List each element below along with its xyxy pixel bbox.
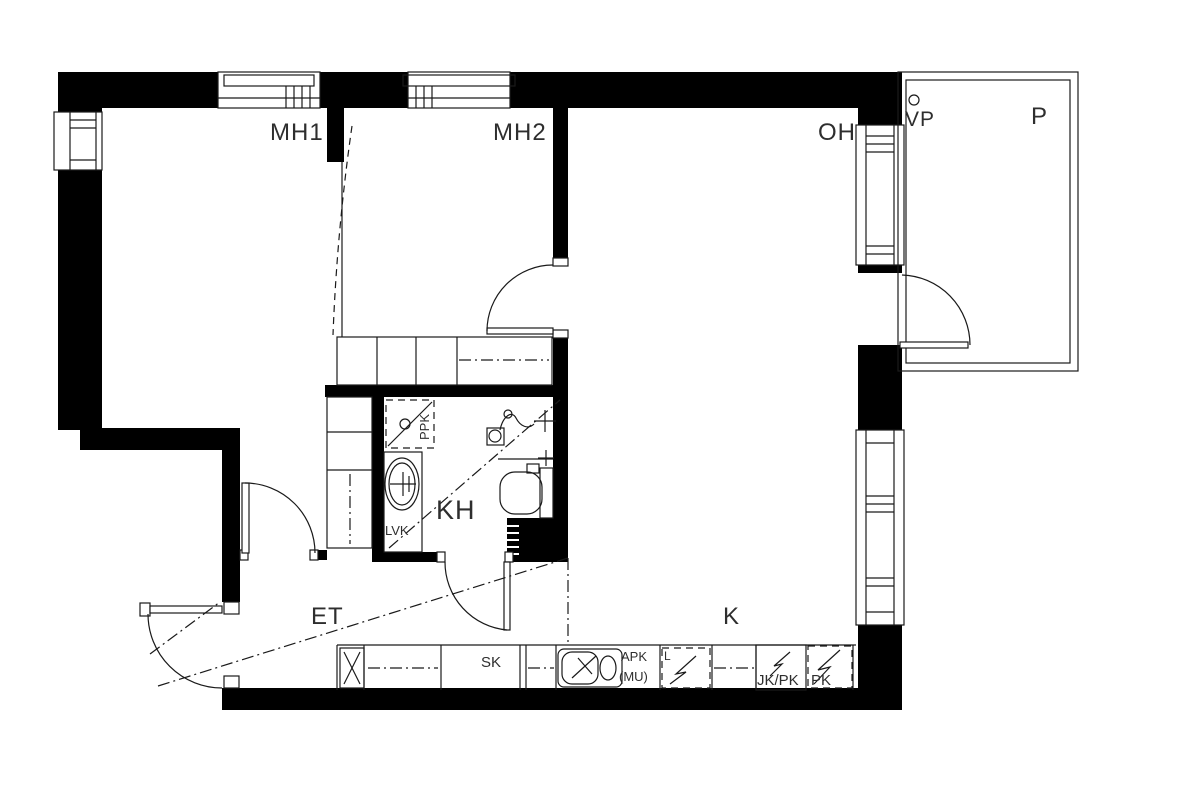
window-mh2 (403, 72, 515, 108)
label-sk: SK (481, 654, 501, 671)
room-label-et: ET (311, 603, 344, 630)
room-labels: MH1 MH2 OH VP P KH ET K (270, 103, 1048, 630)
label-vp: VP (905, 108, 935, 131)
floor-plan-drawing: MH1 MH2 OH VP P KH ET K LVK PPK SK APK (… (0, 0, 1200, 785)
floor-plan-page: MH1 MH2 OH VP P KH ET K LVK PPK SK APK (… (0, 0, 1200, 785)
label-ppk: PPK (417, 414, 432, 440)
closet-strip-west (327, 397, 372, 548)
label-jkpk: JK/PK (757, 672, 799, 689)
door-mh2 (487, 258, 568, 338)
label-apk: APK (621, 649, 647, 664)
room-label-p: P (1031, 103, 1048, 130)
kitchen-sink (558, 649, 622, 687)
entrance-door (140, 602, 239, 688)
door-mh1 (240, 483, 318, 560)
window-oh-east (856, 125, 904, 265)
label-stove: L (664, 649, 671, 663)
fixture-labels: LVK PPK SK APK (MU) L JK/PK PK (385, 414, 831, 689)
label-mu: (MU) (619, 669, 648, 684)
outlet-symbol (400, 419, 410, 429)
room-label-mh2: MH2 (493, 119, 547, 146)
broom-cabinet (340, 648, 364, 688)
wardrobe-row-mh2 (337, 337, 552, 385)
room-label-k: K (723, 603, 740, 630)
interior-walls (318, 108, 568, 562)
label-pk: PK (811, 672, 831, 689)
label-lvk: LVK (385, 523, 409, 538)
room-label-kh: KH (436, 495, 476, 525)
toilet (500, 450, 554, 518)
window-mh1 (218, 72, 320, 108)
room-label-mh1: MH1 (270, 119, 324, 146)
room-label-oh: OH (818, 119, 856, 146)
window-west (54, 112, 102, 170)
window-k-east (856, 430, 904, 625)
balcony-drain-symbol (909, 95, 919, 105)
windows (54, 72, 904, 625)
door-balcony (900, 275, 970, 348)
door-kh (437, 552, 513, 630)
